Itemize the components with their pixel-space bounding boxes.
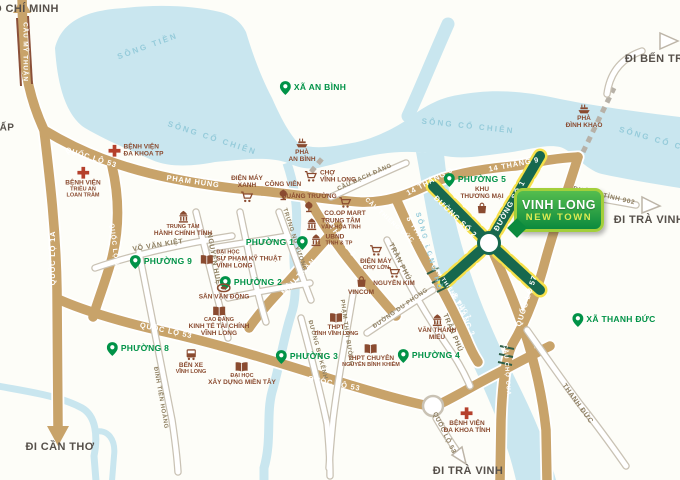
cart-icon — [241, 191, 254, 203]
place-name: PHƯỜNG 9 — [144, 257, 192, 267]
dest-di-ben-tre: ĐI BẾN TRE — [625, 53, 680, 65]
dest-ap: ẤP — [0, 122, 14, 133]
poi-dien-may-xanh: ĐIỆN MÁYXANH — [231, 175, 263, 203]
place-phuong-1: PHƯỜNG 1 — [246, 236, 308, 250]
poi-name: CÔNG VIÊN — [265, 181, 301, 188]
poi-nguyen-kim: NGUYỄN KIM — [373, 267, 415, 287]
poi-san-van-dong: SÂN VẬN ĐỘNG — [199, 283, 250, 300]
cart-icon — [370, 245, 383, 257]
book-icon — [329, 313, 342, 323]
poi-benh-vien-trieu-an: BỆNH VIỆNTRIỀU ANLOAN TRÂM — [65, 167, 100, 200]
road-quoc-lo-53-mid: QUỐC LỘ 53 — [108, 223, 121, 271]
place-name: XÃ AN BÌNH — [294, 83, 346, 93]
gov-icon — [431, 314, 444, 326]
poi-trung-tam-hanh-chinh-tinh: TRUNG TÂMHÀNH CHÍNH TỈNH — [154, 211, 212, 237]
place-name: PHƯỜNG 8 — [121, 344, 169, 354]
cross-icon — [77, 167, 89, 179]
poi-name: UBNDTỈNH & TP — [326, 233, 353, 246]
road-thanh-duc: THANH ĐỨC — [560, 382, 594, 425]
book-icon — [235, 362, 248, 372]
bag-icon — [476, 202, 487, 214]
poi-thpt-vinh-long: THPTTỈNH VĨNH LONG — [314, 313, 359, 337]
poi-vincom: VINCOM — [348, 276, 374, 296]
poi-name: CHỢVĨNH LONG — [320, 170, 356, 185]
poi-name: ĐẠI HỌCXÂY DỰNG MIỀN TÂY — [208, 373, 276, 386]
book-icon — [212, 306, 225, 316]
place-name: PHƯỜNG 1 — [246, 238, 294, 248]
road-quoc-lo-53-s2: QUỐC LỘ 53 — [307, 375, 361, 393]
gov-icon — [176, 211, 189, 223]
cart-icon — [388, 267, 401, 279]
poi-trung-tam-van-hoa: TRUNG TÂMVĂN HÓA TỈNH — [305, 217, 361, 230]
river-song-co-chien-2: SÔNG CỔ CHIÊN — [421, 118, 515, 137]
place-name: PHƯỜNG 5 — [458, 175, 506, 185]
poi-name: TRUNG TÂMHÀNH CHÍNH TỈNH — [154, 224, 212, 237]
poi-name: PHÀĐÌNH KHAO — [566, 115, 603, 130]
poi-cho-vinh-long: CHỢVĨNH LONG — [304, 170, 356, 185]
map-pin-icon — [107, 342, 118, 356]
poi-name: THPTTỈNH VĨNH LONG — [314, 324, 359, 337]
place-phuong-3: PHƯỜNG 3 — [276, 350, 338, 364]
poi-ubnd: UBNDTỈNH & TP — [310, 233, 353, 246]
poi-thpt-chuyen-nbk: THPT CHUYÊNNGUYỄN BỈNH KHIÊM — [342, 344, 400, 368]
poi-dh-su-pham-ky-thuat: ĐẠI HỌCSƯ PHẠM KỸ THUẬTVĨNH LONG — [200, 250, 281, 271]
road-quoc-lo-53-s1: QUỐC LỘ 53 — [139, 321, 193, 340]
road-quoc-lo-57: QUỐC LỘ 57 — [515, 274, 539, 327]
park-icon — [303, 201, 314, 213]
new-town-billboard: VINH LONG NEW TOWN — [514, 188, 604, 232]
gov-icon — [305, 218, 318, 230]
place-name: PHƯỜNG 4 — [412, 351, 460, 361]
poi-pha-dinh-khao: PHÀĐÌNH KHAO — [566, 104, 603, 130]
dest-di-tra-vinh-south: ĐI TRÀ VINH — [433, 465, 503, 477]
road-dinh-tien-hoang: ĐINH TIÊN HOÀNG — [151, 366, 169, 429]
road-14-thang-9-e: 14 THÁNG 9 — [488, 156, 540, 174]
dest-di-tra-vinh-east: ĐI TRÀ VINH — [614, 214, 680, 226]
poi-name: BỆNH VIỆNĐA KHOA TỈNH — [444, 420, 491, 435]
vinh-long-map: Ồ CHÍ MINHĐI CẦN THƠĐI BẾN TREĐI TRÀ VIN… — [0, 0, 680, 480]
road-quoc-lo-1a: QUỐC LỘ 1A — [49, 231, 57, 286]
book-icon — [364, 344, 377, 354]
poi-name: ĐẠI HỌCSƯ PHẠM KỸ THUẬTVĨNH LONG — [216, 250, 281, 271]
poi-khu-thuong-mai: KHUTHƯƠNG MẠI — [460, 186, 503, 214]
place-phuong-9: PHƯỜNG 9 — [130, 255, 192, 269]
gov-icon — [310, 234, 323, 246]
poi-name: SÂN VẬN ĐỘNG — [199, 293, 250, 300]
bridge-cau-cho-cua: CẦU CHỢ CUA — [501, 344, 511, 396]
poi-cao-dang-kinh-te: CAO ĐẲNGKINH TẾ TÀI CHÍNHVĨNH LONG — [189, 306, 250, 338]
cross-icon — [461, 407, 473, 419]
poi-pha-an-binh: PHÀAN BÌNH — [288, 138, 315, 164]
poi-benh-vien-da-khoa-tinh: BỆNH VIỆNĐA KHOA TỈNH — [444, 407, 491, 435]
poi-coop-mart: CO.OP MART — [324, 197, 365, 217]
poi-name: THPT CHUYÊNNGUYỄN BỈNH KHIÊM — [342, 355, 400, 368]
poi-name: TRUNG TÂMVĂN HÓA TỈNH — [321, 217, 361, 230]
bag-icon — [356, 276, 367, 288]
map-pin-icon — [276, 350, 287, 364]
poi-name: CO.OP MART — [324, 210, 365, 217]
river-song-tien: SÔNG TIỀN — [116, 32, 179, 62]
place-phuong-8: PHƯỜNG 8 — [107, 342, 169, 356]
road-vo-van-kiet: VÕ VĂN KIỆT — [132, 238, 184, 254]
poi-name: VĂN THÁNHMIẾU — [418, 327, 456, 342]
road-pham-hung: PHẠM HÙNG — [166, 174, 220, 190]
map-pin-icon — [297, 236, 308, 250]
bus-icon — [186, 349, 197, 361]
poi-name: KHUTHƯƠNG MẠI — [460, 186, 503, 201]
river-song-co-chien-1: SÔNG CỔ CHIÊN — [166, 120, 258, 157]
place-xa-thanh-duc: XÃ THANH ĐỨC — [572, 313, 655, 327]
map-pin-icon — [572, 313, 583, 327]
billboard-title: VINH LONG — [520, 198, 598, 212]
poi-name: BỆNH VIỆNĐA KHOA TP — [124, 144, 164, 159]
place-name: PHƯỜNG 3 — [290, 352, 338, 362]
map-pin-icon — [130, 255, 141, 269]
cart-icon — [304, 171, 317, 183]
poi-dh-xay-dung-mien-tay: ĐẠI HỌCXÂY DỰNG MIỀN TÂY — [208, 362, 276, 386]
dest-di-can-tho: ĐI CẦN THƠ — [26, 441, 95, 453]
place-phuong-5: PHƯỜNG 5 — [444, 173, 506, 187]
map-pin-icon — [444, 173, 455, 187]
place-xa-an-binh: XÃ AN BÌNH — [280, 81, 346, 95]
poi-name: PHÀAN BÌNH — [288, 149, 315, 164]
poi-name: BỆNH VIỆNTRIỀU ANLOAN TRÂM — [65, 180, 100, 200]
poi-name: ĐIỆN MÁYXANH — [231, 175, 263, 190]
place-phuong-4: PHƯỜNG 4 — [398, 349, 460, 363]
stadium-icon — [217, 283, 231, 292]
boat-icon — [578, 104, 591, 114]
map-labels-layer: Ồ CHÍ MINHĐI CẦN THƠĐI BẾN TREĐI TRÀ VIN… — [0, 0, 680, 480]
billboard-subtitle: NEW TOWN — [520, 212, 598, 223]
poi-name: BẾN XEVĨNH LONG — [176, 362, 207, 375]
place-name: XÃ THANH ĐỨC — [586, 315, 655, 325]
poi-name: VINCOM — [348, 289, 374, 296]
poi-benh-vien-da-khoa-tp: BỆNH VIỆNĐA KHOA TP — [109, 144, 164, 159]
poi-name: CAO ĐẲNGKINH TẾ TÀI CHÍNHVĨNH LONG — [189, 317, 250, 338]
poi-van-thanh-mieu: VĂN THÁNHMIẾU — [418, 314, 456, 342]
map-pin-icon — [280, 81, 291, 95]
book-icon — [200, 255, 213, 265]
river-song-co-chien-3: SÔNG CỔ CHIÊN — [618, 126, 680, 160]
road-cau-my-thuan: CẦU MỸ THUẬN — [21, 22, 28, 82]
cart-icon — [338, 197, 351, 209]
poi-ben-xe-vinh-long: BẾN XEVĨNH LONG — [176, 349, 207, 375]
poi-name: NGUYỄN KIM — [373, 280, 415, 287]
dest-ho-chi-minh: Ồ CHÍ MINH — [0, 3, 59, 15]
cross-icon — [109, 145, 121, 157]
boat-icon — [296, 138, 309, 148]
